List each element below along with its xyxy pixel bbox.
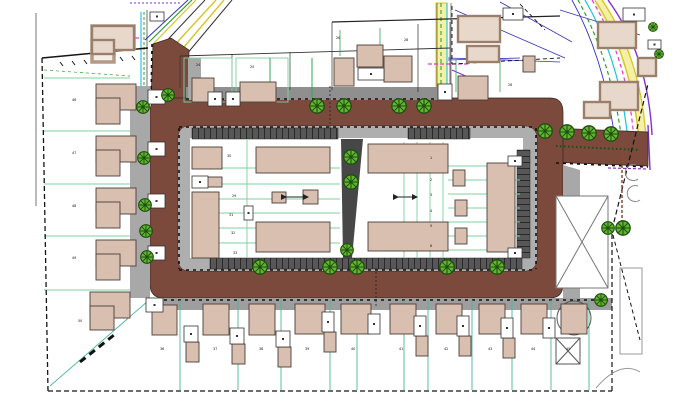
garage-door-mark [514, 160, 516, 162]
proposed-building [458, 76, 488, 100]
existing-building [598, 22, 636, 48]
existing-building [92, 40, 114, 54]
proposed-building [192, 147, 222, 169]
proposed-building [561, 304, 587, 334]
proposed-building [295, 304, 325, 334]
garage-door-mark [327, 321, 329, 323]
plot-number: 44 [531, 347, 535, 351]
tree-icon [582, 126, 596, 140]
garage-door-mark [373, 323, 375, 325]
plot-number: 49 [72, 256, 76, 260]
plot-number: 40 [351, 347, 355, 351]
garage-door-mark [514, 252, 516, 254]
tree-icon [350, 260, 364, 274]
plot-number: 47 [72, 151, 76, 155]
proposed-building [240, 82, 276, 102]
plot-number: 6 [430, 244, 432, 248]
tree-icon [655, 50, 664, 59]
proposed-building [334, 58, 354, 86]
proposed-building [278, 347, 291, 367]
plot-number: 4 [430, 209, 432, 213]
proposed-building [523, 56, 535, 72]
tree-icon [440, 260, 454, 274]
tree-icon [616, 221, 630, 235]
plot-number: 46 [72, 98, 76, 102]
garage-door-mark [633, 14, 635, 16]
garage-door-mark [282, 338, 284, 340]
garage-door-mark [506, 327, 508, 329]
proposed-building [96, 98, 120, 124]
garage-door-mark [156, 200, 158, 202]
plot-number: 1 [430, 156, 432, 160]
proposed-building [203, 304, 229, 335]
garage-door-mark [156, 96, 158, 98]
tree-icon [604, 127, 618, 141]
proposed-building [416, 336, 428, 356]
tree-icon [253, 260, 267, 274]
existing-building [638, 58, 656, 76]
tree-icon [560, 125, 574, 139]
tree-icon [392, 99, 406, 113]
tree-icon [138, 152, 151, 165]
plot-number: 29 [232, 194, 236, 198]
proposed-building [272, 192, 286, 203]
plot-number: 3 [430, 193, 432, 197]
existing-building [584, 102, 610, 118]
plot-number: 5 [430, 224, 432, 228]
plot-number: 32 [231, 231, 235, 235]
proposed-building [249, 304, 275, 335]
plot-number: 42 [444, 347, 448, 351]
tree-icon [323, 260, 337, 274]
tree-icon [344, 150, 358, 164]
garage-door-mark [156, 252, 158, 254]
plot-number: 45 [566, 347, 570, 351]
tree-icon [162, 89, 175, 102]
proposed-building [324, 332, 336, 352]
plot-number: 28 [404, 38, 408, 42]
proposed-building [96, 150, 120, 176]
plot-number: 2 [430, 178, 432, 182]
tree-icon [538, 124, 552, 138]
garage-door-mark [156, 16, 158, 18]
proposed-building [256, 147, 330, 173]
plot-number: 43 [488, 347, 492, 351]
proposed-building [256, 222, 330, 252]
plot-number: 41 [399, 347, 403, 351]
proposed-building [487, 163, 515, 252]
garage-door-mark [154, 304, 156, 306]
garage-door-mark [370, 73, 372, 75]
tree-icon [139, 199, 152, 212]
garage-door-mark [654, 44, 656, 46]
proposed-building [455, 200, 467, 216]
proposed-building [96, 202, 120, 228]
garage-door-mark [214, 98, 216, 100]
proposed-building [390, 304, 416, 334]
proposed-building [357, 45, 383, 67]
tree-icon [341, 244, 354, 257]
garage-door-mark [248, 212, 250, 214]
existing-building [467, 46, 499, 62]
plot-number: 38 [259, 347, 263, 351]
garage-door-mark [419, 325, 421, 327]
plot-number: 39 [305, 347, 309, 351]
proposed-building [455, 228, 467, 244]
proposed-building [232, 344, 245, 364]
tree-icon [140, 225, 153, 238]
plot-number: 24 [196, 63, 200, 67]
tree-icon [337, 99, 351, 113]
garage-door-mark [190, 333, 192, 335]
tree-icon [310, 99, 324, 113]
garage-door-mark [548, 327, 550, 329]
plot-number: 36 [160, 347, 164, 351]
garage-door-mark [236, 335, 238, 337]
plot-number: 50 [78, 319, 82, 323]
tree-icon [417, 99, 431, 113]
site-plan-svg: 4647484950282826242530293132331234563637… [0, 0, 698, 412]
tree-icon [649, 23, 658, 32]
proposed-building [90, 306, 114, 330]
proposed-building [459, 336, 471, 356]
garage-door-mark [512, 13, 514, 15]
garage-door-mark [462, 325, 464, 327]
proposed-building [186, 342, 199, 362]
plot-number: 25 [250, 65, 254, 69]
garage-door-mark [199, 181, 201, 183]
plot-number: 28 [336, 36, 340, 40]
garage-door-mark [444, 91, 446, 93]
plot-number: 31 [229, 213, 233, 217]
plot-number: 33 [233, 251, 237, 255]
proposed-building [384, 56, 412, 82]
site-plan-drawing: 4647484950282826242530293132331234563637… [0, 0, 698, 412]
plot-number: 26 [508, 83, 512, 87]
tree-icon [490, 260, 504, 274]
existing-building [458, 16, 500, 42]
garage-door-mark [156, 148, 158, 150]
plot-number: 48 [72, 204, 76, 208]
proposed-building [96, 254, 120, 280]
proposed-building [341, 304, 371, 334]
proposed-building [368, 222, 448, 251]
proposed-building [368, 144, 448, 173]
tree-icon [137, 101, 150, 114]
proposed-building [453, 170, 465, 186]
tree-icon [595, 294, 608, 307]
tree-icon [602, 222, 615, 235]
garage-door-mark [232, 98, 234, 100]
plot-number: 37 [213, 347, 217, 351]
proposed-building [192, 192, 219, 258]
tree-icon [344, 175, 358, 189]
plot-number: 30 [227, 154, 231, 158]
proposed-building [503, 338, 515, 358]
tree-icon [141, 251, 154, 264]
